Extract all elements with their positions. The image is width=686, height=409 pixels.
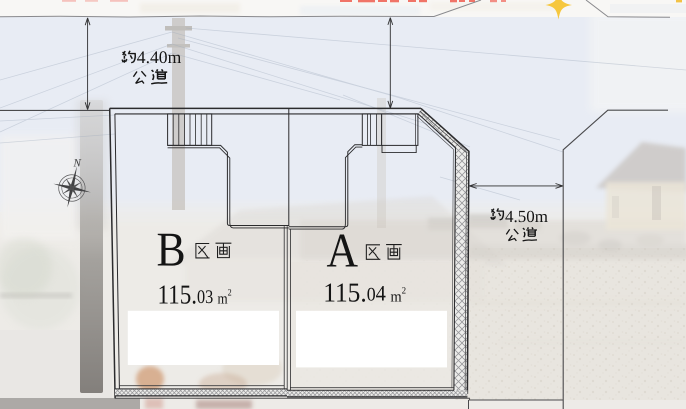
svg-text:B: B (157, 224, 186, 277)
svg-text:A: A (327, 224, 359, 277)
svg-text:N: N (73, 157, 82, 169)
svg-text:4.50m: 4.50m (505, 207, 548, 226)
svg-text:4.40m: 4.40m (137, 47, 182, 67)
